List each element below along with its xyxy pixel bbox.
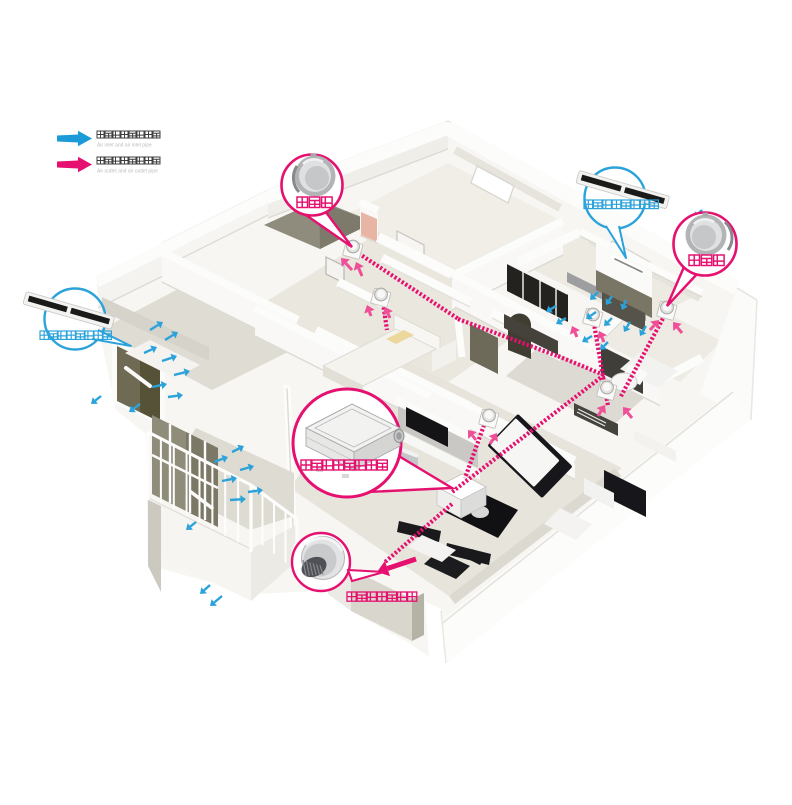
svg-text:Air outlet and air outlet pipe: Air outlet and air outlet pipe: [97, 169, 158, 175]
svg-text:Air inlet and air inlet pipe: Air inlet and air inlet pipe: [97, 143, 152, 149]
